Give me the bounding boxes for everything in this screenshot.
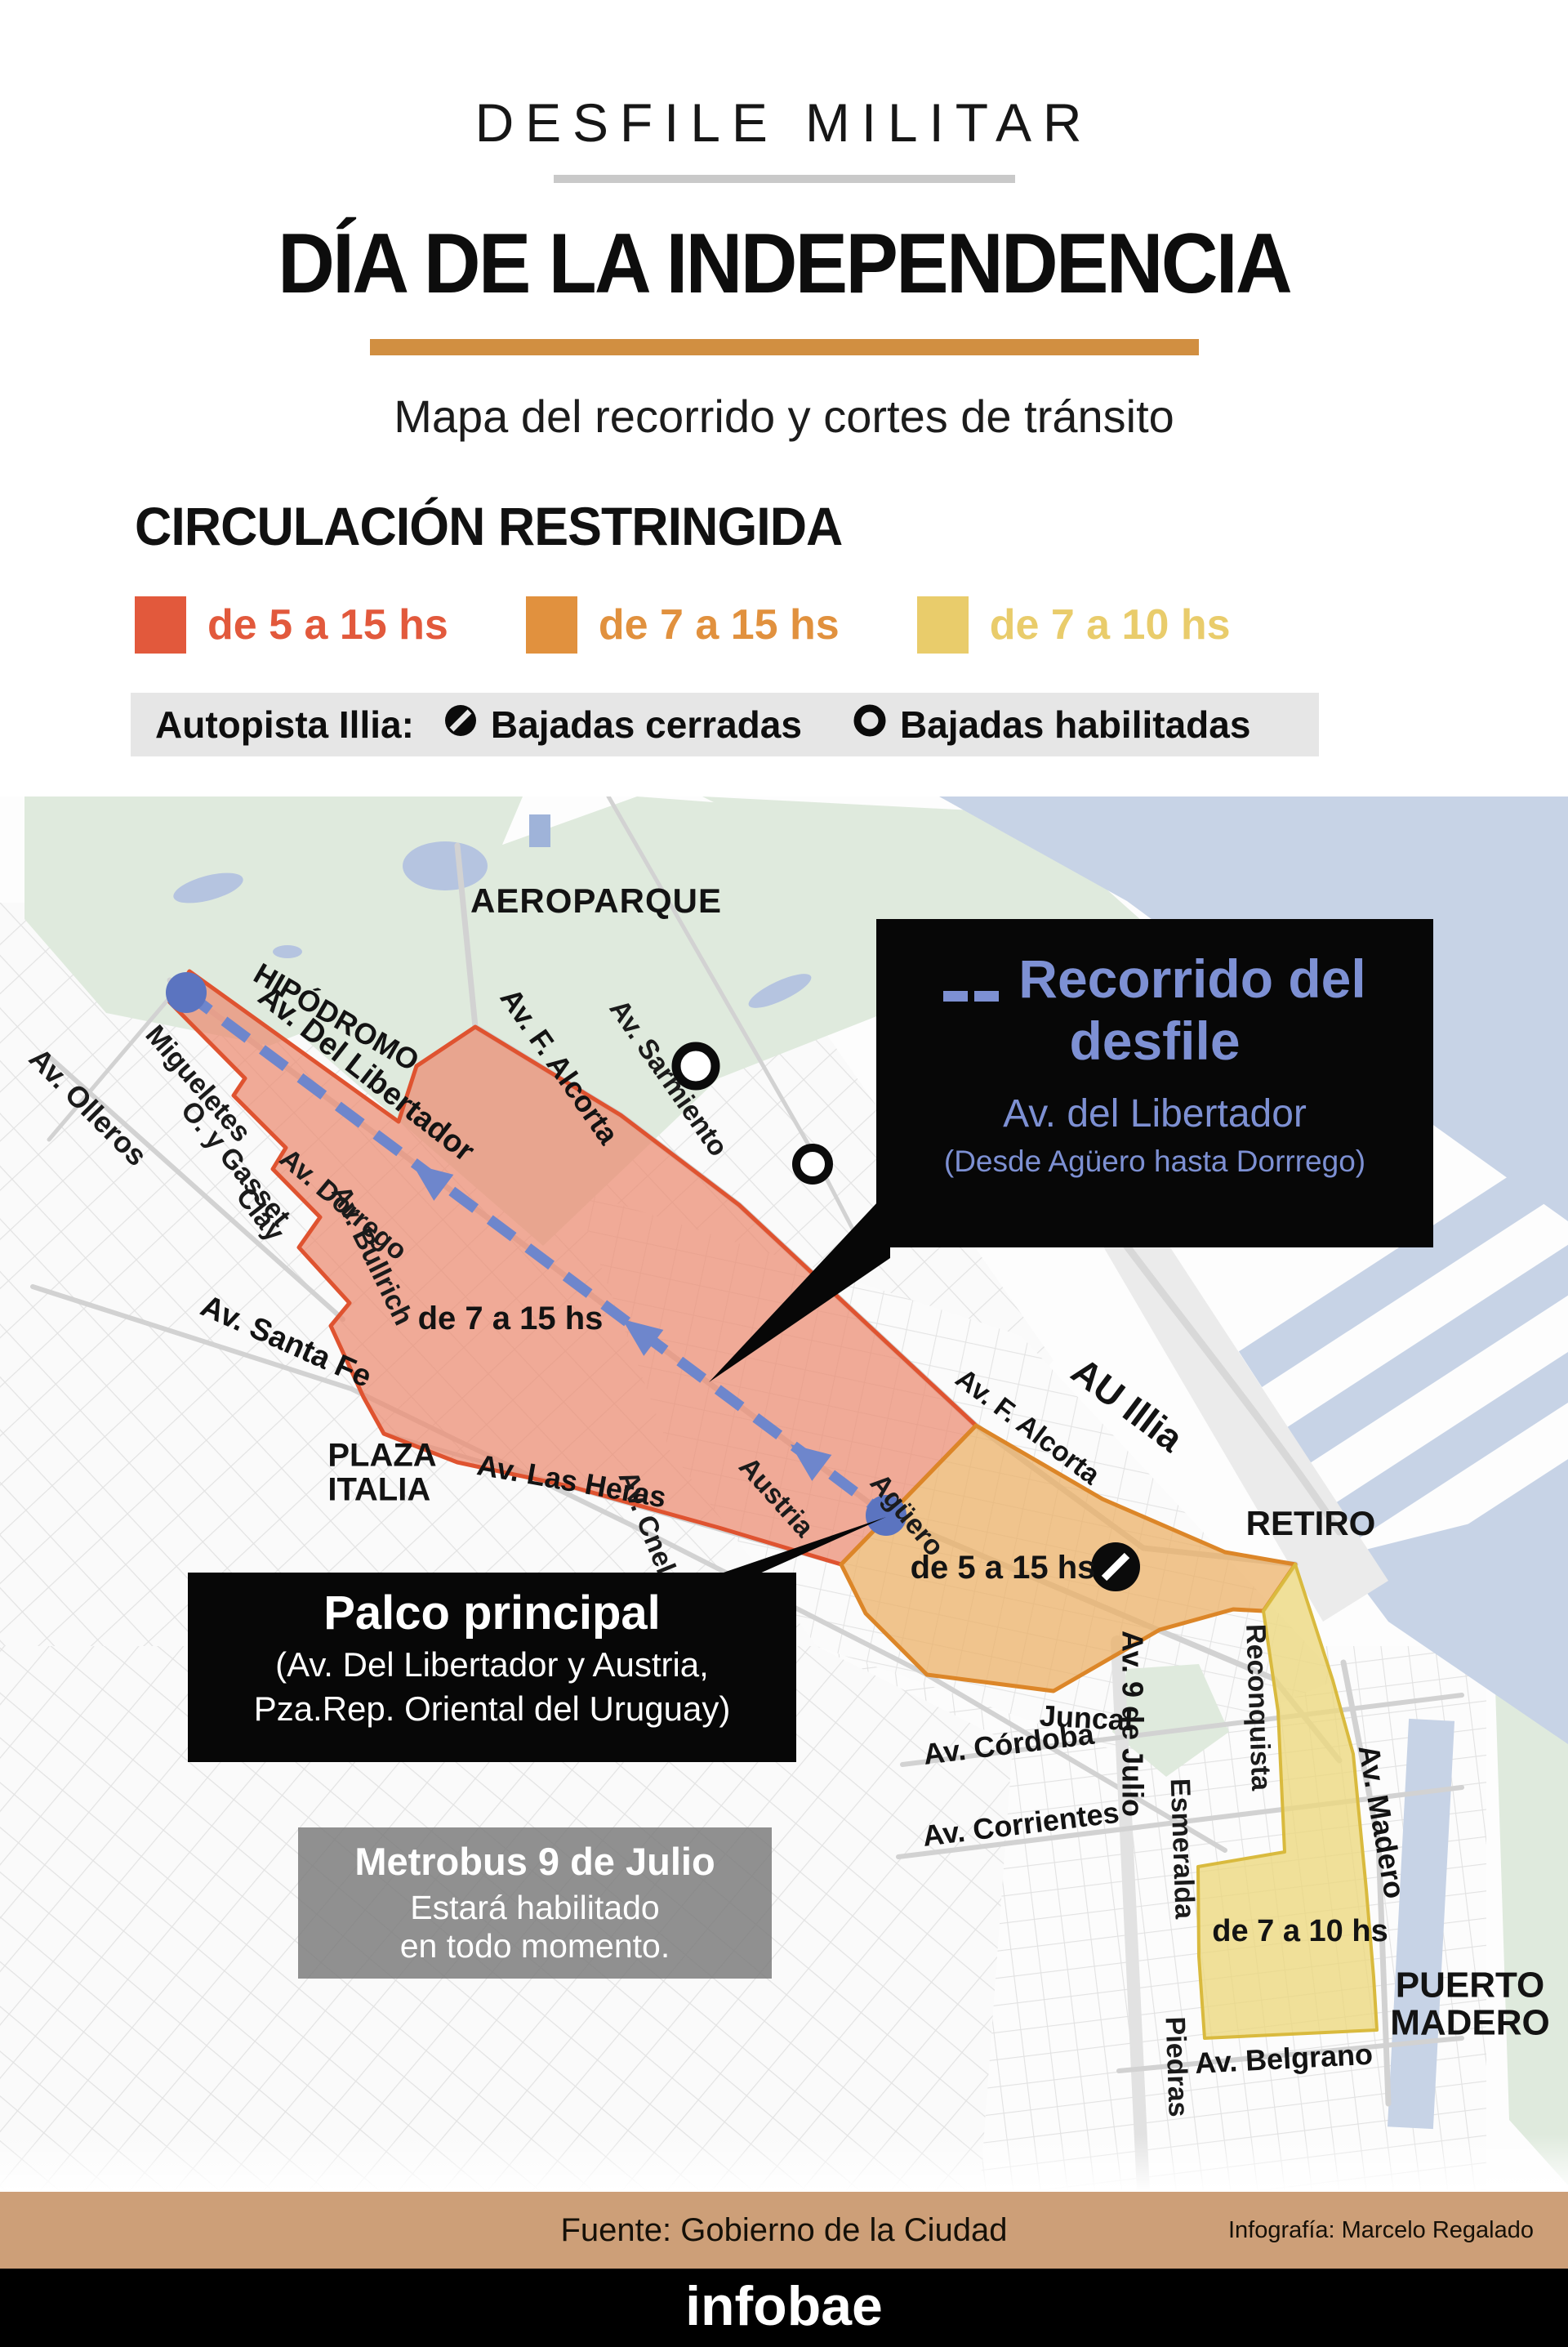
traffic-map: AEROPARQUE HIPÓDROMO Av. Del Libertador … bbox=[0, 796, 1568, 2192]
legend-item-label: de 7 a 10 hs bbox=[990, 600, 1231, 649]
open-exits-label: Bajadas habilitadas bbox=[900, 703, 1251, 747]
area-label-plaza-italia: PLAZA ITALIA bbox=[327, 1439, 436, 1506]
orange-divider bbox=[370, 339, 1199, 355]
route-callout-title: Recorrido del desfile bbox=[876, 950, 1433, 1070]
orange-swatch bbox=[526, 596, 577, 654]
legend-item-orange: de 7 a 15 hs bbox=[526, 596, 840, 654]
palco-callout: Palco principal (Av. Del Libertador y Au… bbox=[188, 1573, 796, 1762]
route-callout: Recorrido del desfile Av. del Libertador… bbox=[876, 919, 1433, 1247]
metrobus-callout-body2: en todo momento. bbox=[298, 1927, 772, 1966]
legend-item-red: de 5 a 15 hs bbox=[135, 596, 448, 654]
kicker: DESFILE MILITAR bbox=[0, 91, 1568, 154]
brand-logo: infobae bbox=[0, 2269, 1568, 2344]
no-entry-icon bbox=[1091, 1542, 1140, 1591]
street-label-reconquista: Reconquista bbox=[1241, 1623, 1275, 1791]
credit-text: Infografía: Marcelo Regalado bbox=[1228, 2192, 1534, 2269]
legend-item-label: de 5 a 15 hs bbox=[207, 600, 448, 649]
yellow-swatch bbox=[917, 596, 969, 654]
page-subtitle: Mapa del recorrido y cortes de tránsito bbox=[0, 390, 1568, 443]
palco-callout-address1: (Av. Del Libertador y Austria, bbox=[188, 1645, 796, 1684]
dashed-route-icon bbox=[943, 954, 1005, 1012]
route-callout-street: Av. del Libertador bbox=[876, 1091, 1433, 1136]
footer-source-bar: Fuente: Gobierno de la Ciudad Infografía… bbox=[0, 2192, 1568, 2269]
street-label-piedras: Piedras bbox=[1160, 2016, 1192, 2117]
area-label-aeroparque: AEROPARQUE bbox=[470, 883, 722, 919]
legend-swatches: de 5 a 15 hs de 7 a 15 hs de 7 a 10 hs bbox=[135, 596, 1308, 654]
red-swatch bbox=[135, 596, 186, 654]
legend-heading: CIRCULACIÓN RESTRINGIDA bbox=[135, 495, 842, 557]
gray-divider bbox=[554, 175, 1015, 183]
route-callout-detail: (Desde Agüero hasta Dorrrego) bbox=[876, 1144, 1433, 1179]
zone-label-red-hours: de 7 a 15 hs bbox=[418, 1302, 604, 1336]
highway-note-bar: Autopista Illia: Bajadas cerradas Bajada… bbox=[131, 693, 1319, 756]
route-start-dot bbox=[166, 972, 207, 1013]
area-label-puerto-madero: PUERTO MADERO bbox=[1390, 1966, 1550, 2041]
zone-label-orange-hours: de 5 a 15 hs bbox=[911, 1551, 1096, 1586]
legend-item-label: de 7 a 15 hs bbox=[599, 600, 840, 649]
metrobus-callout-title: Metrobus 9 de Julio bbox=[298, 1839, 772, 1884]
page-title: DÍA DE LA INDEPENDENCIA bbox=[55, 216, 1513, 313]
route-callout-title-text: Recorrido del desfile bbox=[1018, 948, 1365, 1071]
street-label-esmeralda: Esmeralda bbox=[1165, 1778, 1198, 1919]
area-label-retiro: RETIRO bbox=[1246, 1506, 1376, 1542]
no-entry-icon bbox=[442, 702, 479, 748]
closed-exits-label: Bajadas cerradas bbox=[491, 703, 802, 747]
metrobus-callout: Metrobus 9 de Julio Estará habilitado en… bbox=[298, 1827, 772, 1979]
ring-icon bbox=[851, 702, 889, 748]
ring-icon bbox=[796, 1148, 829, 1180]
header: DESFILE MILITAR DÍA DE LA INDEPENDENCIA … bbox=[0, 0, 1568, 443]
street-label-9dejulio: Av. 9 de Julio bbox=[1117, 1631, 1147, 1817]
infographic-page: DESFILE MILITAR DÍA DE LA INDEPENDENCIA … bbox=[0, 0, 1568, 2347]
legend-item-yellow: de 7 a 10 hs bbox=[917, 596, 1231, 654]
map-bottom-fade bbox=[0, 2135, 1568, 2192]
highway-note-prefix: Autopista Illia: bbox=[155, 703, 414, 747]
palco-callout-address2: Pza.Rep. Oriental del Uruguay) bbox=[188, 1689, 796, 1729]
palco-callout-title: Palco principal bbox=[188, 1586, 796, 1640]
metrobus-callout-body1: Estará habilitado bbox=[298, 1889, 772, 1927]
footer-brand-bar: infobae bbox=[0, 2269, 1568, 2347]
zone-label-yellow-hours: de 7 a 10 hs bbox=[1212, 1916, 1388, 1948]
